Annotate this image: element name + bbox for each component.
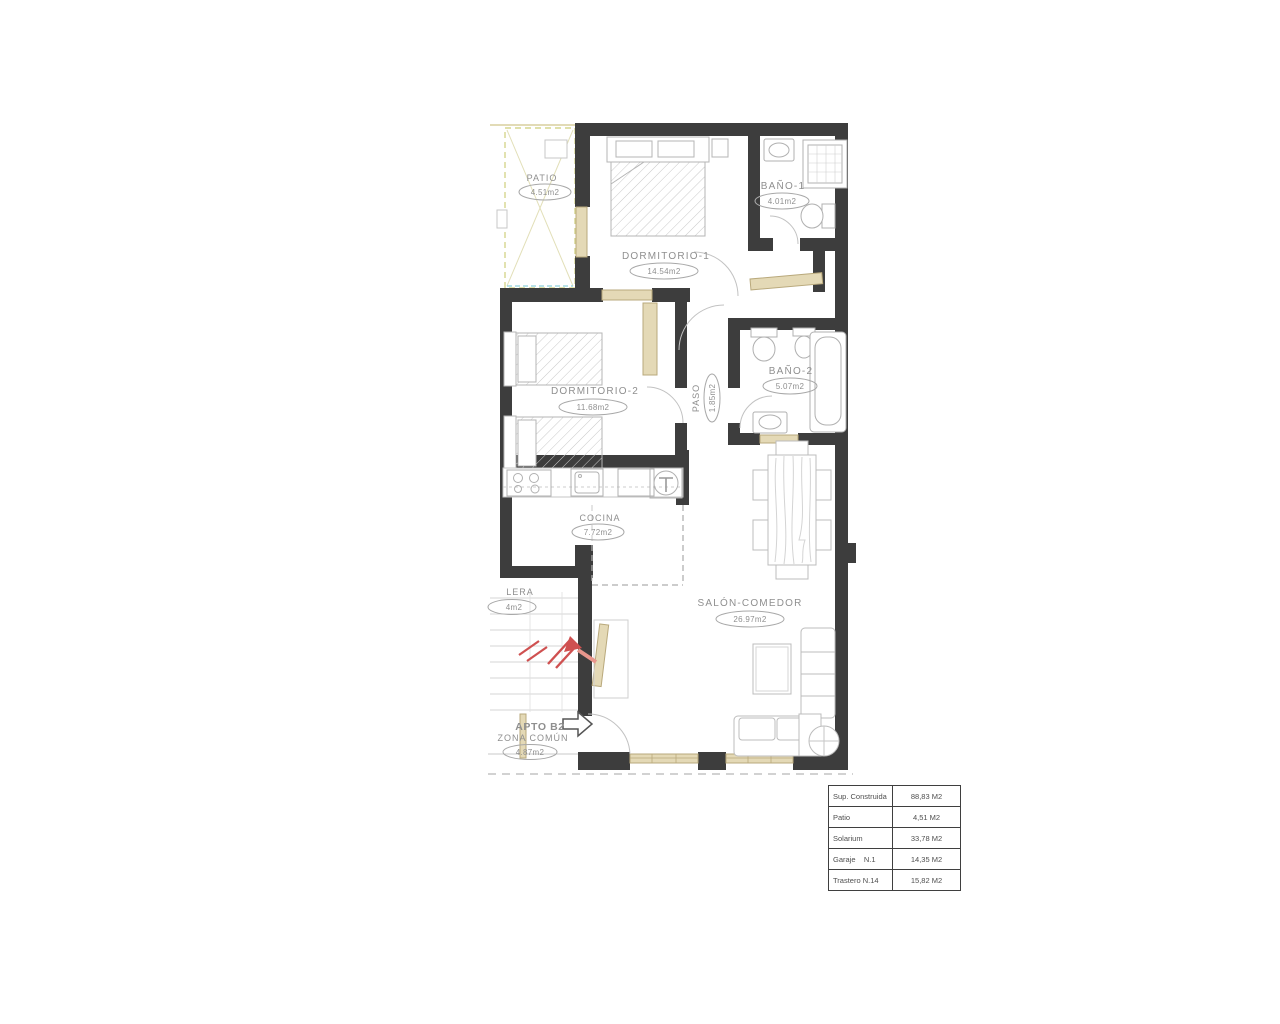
wall-pillar bbox=[840, 543, 856, 563]
svg-text:1.85m2: 1.85m2 bbox=[708, 384, 717, 413]
room-label-escalera: LERA 4m2 bbox=[488, 587, 536, 615]
row-label: Garaje N.1 bbox=[829, 849, 893, 869]
svg-text:DORMITORIO-1: DORMITORIO-1 bbox=[622, 251, 710, 262]
table-row: Sup. Construida 88,83 M2 bbox=[829, 786, 960, 807]
twin-beds bbox=[504, 332, 602, 470]
svg-text:11.68m2: 11.68m2 bbox=[577, 403, 610, 412]
dining-chair bbox=[776, 441, 808, 455]
table-row: Solarium 33,78 M2 bbox=[829, 828, 960, 849]
toilet-icon bbox=[751, 328, 777, 361]
entry-door-arc bbox=[588, 714, 630, 754]
hall-wardrobe bbox=[750, 273, 823, 290]
room-label-salon: SALÓN-COMEDOR 26.97m2 bbox=[697, 596, 802, 627]
row-label: Solarium bbox=[829, 828, 893, 848]
d2-door-arc bbox=[647, 387, 683, 423]
row-label: Sup. Construida bbox=[829, 786, 893, 806]
row-value: 14,35 M2 bbox=[893, 849, 960, 869]
svg-text:4.01m2: 4.01m2 bbox=[768, 197, 797, 206]
row-value: 15,82 M2 bbox=[893, 870, 960, 890]
dining-chair bbox=[753, 470, 768, 500]
svg-text:7.72m2: 7.72m2 bbox=[584, 528, 613, 537]
closet-d1 bbox=[602, 290, 652, 300]
floor-plan-canvas: PATIO 4.51m2 DORMITORIO-1 14.54m2 BAÑO-1… bbox=[0, 0, 1280, 1024]
dining-chair bbox=[753, 520, 768, 550]
surface-summary-table: Sup. Construida 88,83 M2 Patio 4,51 M2 S… bbox=[828, 785, 961, 891]
svg-text:4.87m2: 4.87m2 bbox=[516, 748, 545, 757]
svg-text:PASO: PASO bbox=[691, 384, 701, 412]
svg-text:4.51m2: 4.51m2 bbox=[531, 188, 560, 197]
nightstand bbox=[712, 139, 728, 157]
room-label-dormitorio2: DORMITORIO-2 11.68m2 bbox=[551, 386, 639, 415]
double-bed bbox=[607, 137, 728, 236]
patio-window bbox=[576, 207, 587, 257]
svg-text:LERA: LERA bbox=[506, 587, 534, 597]
toilet-icon bbox=[801, 204, 835, 228]
round-side-table bbox=[809, 726, 839, 756]
row-value: 4,51 M2 bbox=[893, 807, 960, 827]
svg-text:4m2: 4m2 bbox=[506, 603, 523, 612]
dining-chair bbox=[776, 565, 808, 579]
table-row: Patio 4,51 M2 bbox=[829, 807, 960, 828]
shower-icon bbox=[803, 140, 847, 188]
patio-box bbox=[497, 210, 507, 228]
salon-window-1 bbox=[630, 754, 698, 763]
svg-text:5.07m2: 5.07m2 bbox=[776, 382, 805, 391]
svg-text:COCINA: COCINA bbox=[579, 513, 620, 523]
dining-chair bbox=[816, 520, 831, 550]
apartment-label: APTO B2 bbox=[515, 721, 565, 733]
ac-unit bbox=[545, 140, 567, 158]
room-label-cocina: COCINA 7.72m2 bbox=[572, 513, 624, 540]
room-label-patio: PATIO 4.51m2 bbox=[519, 173, 571, 200]
coffee-table bbox=[753, 644, 791, 694]
bathtub-icon bbox=[810, 332, 846, 432]
sideboard bbox=[592, 624, 608, 687]
zona-comun-label: ZONA COMÚN bbox=[497, 733, 568, 743]
row-label: Trastero N.14 bbox=[829, 870, 893, 890]
svg-text:SALÓN-COMEDOR: SALÓN-COMEDOR bbox=[697, 596, 802, 609]
salon-furniture bbox=[594, 620, 839, 756]
bano1-door-arc bbox=[770, 216, 798, 244]
bano2-fixtures bbox=[751, 328, 846, 433]
svg-text:BAÑO-2: BAÑO-2 bbox=[769, 364, 813, 377]
washbasin-icon bbox=[764, 139, 794, 161]
chaise-longue bbox=[801, 628, 835, 718]
table-row: Trastero N.14 15,82 M2 bbox=[829, 870, 960, 890]
room-label-dormitorio1: DORMITORIO-1 14.54m2 bbox=[622, 251, 710, 279]
room-label-paso: PASO 1.85m2 bbox=[691, 374, 720, 422]
dining-chair bbox=[816, 470, 831, 500]
table-row: Garaje N.1 14,35 M2 bbox=[829, 849, 960, 870]
svg-text:BAÑO-1: BAÑO-1 bbox=[761, 179, 805, 192]
room-label-bano1: BAÑO-1 4.01m2 bbox=[755, 179, 809, 209]
wardrobe-d2 bbox=[643, 303, 657, 375]
svg-text:PATIO: PATIO bbox=[527, 173, 558, 183]
row-value: 88,83 M2 bbox=[893, 786, 960, 806]
room-label-bano2: BAÑO-2 5.07m2 bbox=[763, 364, 817, 394]
floor-plan-drawing: PATIO 4.51m2 DORMITORIO-1 14.54m2 BAÑO-1… bbox=[0, 0, 1280, 1024]
row-label: Patio bbox=[829, 807, 893, 827]
washbasin-icon bbox=[753, 412, 787, 433]
svg-text:14.54m2: 14.54m2 bbox=[647, 267, 680, 276]
svg-text:DORMITORIO-2: DORMITORIO-2 bbox=[551, 386, 639, 397]
row-value: 33,78 M2 bbox=[893, 828, 960, 848]
dining-table bbox=[753, 441, 831, 579]
patio-outline bbox=[497, 128, 575, 288]
svg-text:26.97m2: 26.97m2 bbox=[733, 615, 766, 624]
